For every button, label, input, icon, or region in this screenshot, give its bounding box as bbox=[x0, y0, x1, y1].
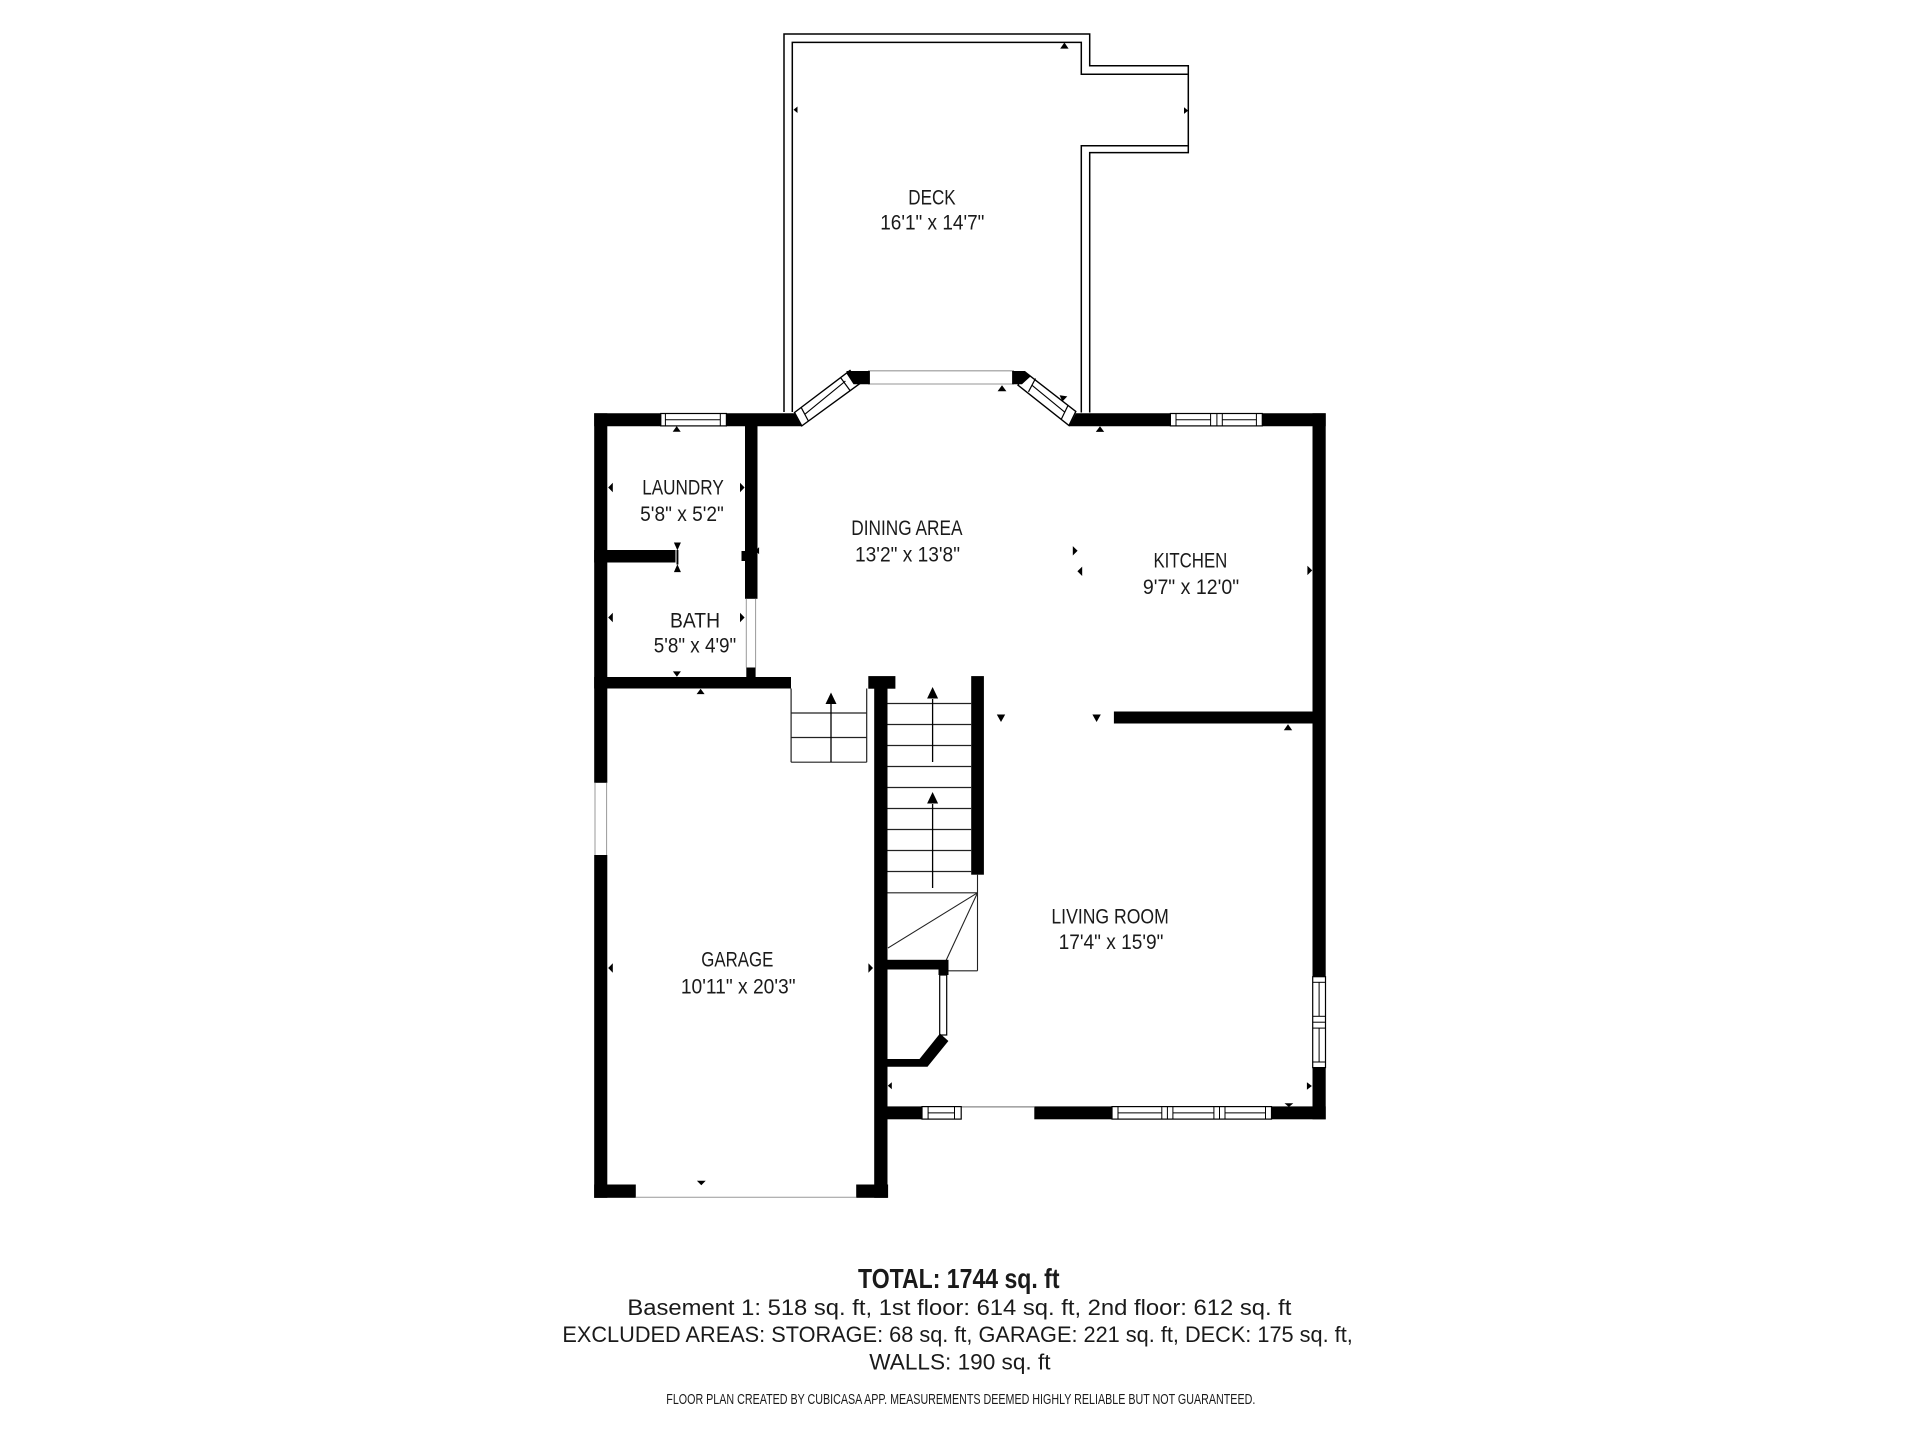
svg-text:KITCHEN: KITCHEN bbox=[1153, 549, 1227, 572]
svg-text:DINING AREA: DINING AREA bbox=[851, 517, 962, 540]
svg-text:GARAGE: GARAGE bbox=[701, 949, 773, 972]
svg-text:LIVING ROOM: LIVING ROOM bbox=[1051, 906, 1168, 929]
svg-text:Basement 1: 518 sq. ft, 1st fl: Basement 1: 518 sq. ft, 1st floor: 614 s… bbox=[627, 1295, 1292, 1320]
svg-text:TOTAL: 1744 sq. ft: TOTAL: 1744 sq. ft bbox=[858, 1263, 1060, 1294]
svg-text:FLOOR PLAN CREATED BY CUBICASA: FLOOR PLAN CREATED BY CUBICASA APP. MEAS… bbox=[666, 1391, 1255, 1408]
svg-text:9'7" x 12'0": 9'7" x 12'0" bbox=[1143, 576, 1239, 599]
svg-text:LAUNDRY: LAUNDRY bbox=[642, 477, 724, 500]
svg-text:13'2" x 13'8": 13'2" x 13'8" bbox=[855, 543, 960, 566]
svg-text:5'8" x 4'9": 5'8" x 4'9" bbox=[654, 635, 737, 658]
svg-text:10'11" x 20'3": 10'11" x 20'3" bbox=[681, 975, 796, 998]
svg-text:DECK: DECK bbox=[908, 186, 955, 209]
svg-text:WALLS: 190 sq. ft: WALLS: 190 sq. ft bbox=[869, 1350, 1051, 1375]
svg-text:17'4" x 15'9": 17'4" x 15'9" bbox=[1059, 931, 1164, 954]
svg-text:5'8" x 5'2": 5'8" x 5'2" bbox=[640, 503, 724, 526]
svg-text:BATH: BATH bbox=[670, 610, 720, 633]
svg-text:EXCLUDED AREAS: STORAGE: 68 sq: EXCLUDED AREAS: STORAGE: 68 sq. ft, GARA… bbox=[562, 1322, 1352, 1347]
svg-text:16'1" x 14'7": 16'1" x 14'7" bbox=[880, 211, 984, 234]
